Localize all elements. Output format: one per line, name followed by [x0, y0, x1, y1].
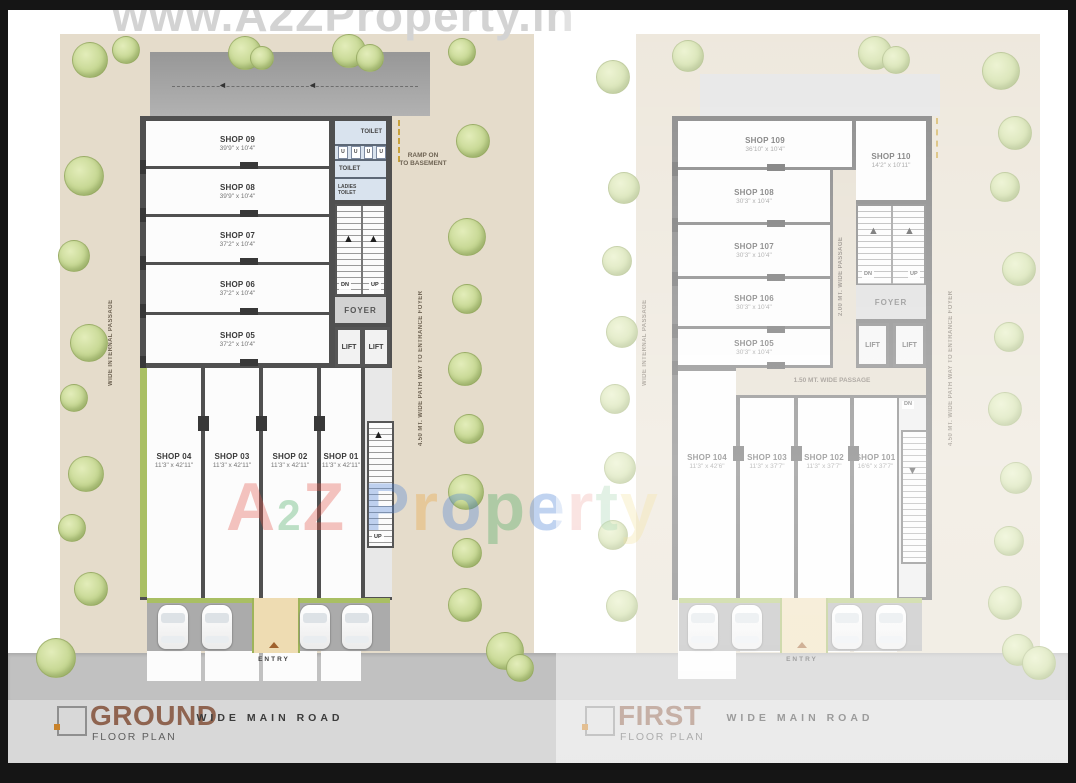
ramp-note-line2: TO BASEMENT [399, 160, 446, 167]
tree-icon [982, 52, 1020, 90]
passage-horizontal-label: 1.50 MT. WIDE PASSAGE [762, 377, 902, 385]
wall-column [848, 446, 859, 461]
wall-column [672, 324, 678, 338]
shop-room: SHOP 110 14'2" x 10'11" [856, 121, 926, 200]
tree-icon [448, 38, 476, 66]
wall-column [140, 304, 146, 318]
tree-icon [602, 246, 632, 276]
tree-icon [58, 240, 90, 272]
shop-dim: 37'2" x 10'4" [220, 290, 256, 297]
tree-icon [994, 322, 1024, 352]
tree-icon [70, 324, 108, 362]
shop-room: SHOP 105 30'3" x 10'4" [678, 329, 830, 365]
first-top-band [700, 74, 940, 116]
shop-name: SHOP 106 [734, 294, 774, 303]
wall-column [314, 416, 325, 431]
shop-room: SHOP 109 36'10" x 10'4" [678, 121, 852, 167]
stair-dn-label: DN [339, 282, 351, 290]
stair-dn-label: DN [902, 401, 914, 409]
frame-top [0, 0, 1076, 10]
pathway-label: 4.50 MT. WIDE PATH WAY TO ENTRANCE FOYER [948, 312, 954, 446]
pathway-label: 4.50 MT. WIDE PATH WAY TO ENTRANCE FOYER [418, 312, 424, 446]
shop-room: SHOP 107 30'3" x 10'4" [678, 225, 830, 276]
hedge-strip [140, 368, 147, 597]
tree-icon [606, 590, 638, 622]
tree-icon [448, 588, 482, 622]
lift: LIFT [362, 327, 390, 367]
stair-dn-label: DN [862, 271, 874, 279]
tree-icon [452, 284, 482, 314]
wall-column [140, 160, 146, 174]
shop-dim: 11'3" x 37'7" [806, 463, 841, 470]
foyer: FOYER [856, 285, 926, 319]
tree-icon [608, 172, 640, 204]
shop-name: SHOP 04 [156, 452, 191, 461]
frame-right [1068, 0, 1076, 783]
ramp-note-line1: RAMP ON [408, 152, 439, 159]
wall-column [240, 308, 258, 315]
tree-icon [998, 116, 1032, 150]
stair-up-label: UP [369, 282, 381, 290]
wall-column [256, 416, 267, 431]
tree-icon [600, 384, 630, 414]
tree-icon [36, 638, 76, 678]
frame-bottom [0, 763, 1076, 783]
drive-direction-icon: ◄ [218, 81, 227, 90]
parked-car-icon [300, 605, 330, 649]
shop-name: SHOP 08 [220, 183, 255, 192]
shop-name: SHOP 107 [734, 242, 774, 251]
legend-dot-icon [54, 724, 60, 730]
shop-room: SHOP 08 39'9" x 10'4" [146, 169, 329, 214]
wall-column [240, 258, 258, 265]
floor-plan-sheet: www.A2ZProperty.in ◄ ◄ RAMP ON TO BASEME… [0, 0, 1076, 783]
entry-marker-icon [269, 642, 279, 648]
tree-icon [988, 586, 1022, 620]
passage-vertical-label: 2.00 MT. WIDE PASSAGE [838, 206, 844, 346]
tree-icon [1002, 252, 1036, 286]
shop-name: SHOP 01 [323, 452, 358, 461]
shop-dim: 14'2" x 10'11" [872, 162, 911, 169]
shop-name: SHOP 06 [220, 280, 255, 289]
tree-icon [68, 456, 104, 492]
wall-column [140, 256, 146, 270]
internal-passage-label: WIDE INTERNAL PASSAGE [642, 295, 648, 391]
entry-label: ENTRY [252, 656, 296, 663]
stair-up-icon: ▲ [368, 234, 379, 245]
road-label: WIDE MAIN ROAD [160, 712, 380, 724]
tree-icon [506, 654, 534, 682]
first-plan-subtitle: FLOOR PLAN [620, 731, 705, 743]
tree-icon [74, 572, 108, 606]
tree-icon [990, 172, 1020, 202]
tree-icon [448, 218, 486, 256]
tree-icon [64, 156, 104, 196]
legend-square-icon [57, 706, 87, 736]
wall-column [240, 162, 258, 169]
stair-down-icon: ▼ [907, 466, 918, 477]
shop-dim: 39'9" x 10'4" [220, 145, 256, 152]
wall-column [672, 162, 678, 176]
urinal-icon: U [351, 146, 361, 159]
shop-name: SHOP 07 [220, 231, 255, 240]
first-building: SHOP 109 36'10" x 10'4" SHOP 108 30'3" x… [672, 116, 932, 600]
ladies-toilet-label: LADIES TOILET [338, 184, 356, 196]
legend-square-icon [585, 706, 615, 736]
brand-word-property: Property [364, 469, 660, 545]
shop-name: SHOP 110 [871, 152, 910, 161]
lift: LIFT [856, 323, 889, 367]
entry-marker-icon [797, 642, 807, 648]
wall-column [791, 446, 802, 461]
parked-car-icon [832, 605, 862, 649]
shop-dim: 30'3" x 10'4" [736, 252, 772, 259]
shop-dim: 11'3" x 42'6" [689, 463, 724, 470]
parked-car-icon [876, 605, 906, 649]
wall-column [767, 164, 785, 171]
urinal-icon: U [376, 146, 386, 159]
tree-icon [456, 124, 490, 158]
ladies-line2: TOILET [338, 190, 356, 196]
tree-icon [882, 46, 910, 74]
entry-label: ENTRY [780, 656, 824, 663]
wall-column [198, 416, 209, 431]
ground-driveway [150, 52, 430, 116]
urinal-icon: U [338, 146, 348, 159]
toilet-block: TOILET U U U U TOILET LADIES TOILET [335, 121, 386, 200]
lift: LIFT [335, 327, 363, 367]
shop-dim: 11'3" x 42'11" [155, 462, 193, 469]
stair-up-label: UP [908, 271, 920, 279]
ramp-barrier-line [936, 118, 938, 158]
wall-column [767, 326, 785, 333]
wall-column [672, 218, 678, 232]
wide-passage-vertical [833, 170, 856, 392]
brand-word-a2z: A2Z [226, 469, 346, 545]
shop-room: SHOP 06 37'2" x 10'4" [146, 265, 329, 312]
shop-name: SHOP 108 [734, 188, 774, 197]
parked-car-icon [202, 605, 232, 649]
shop-dim: 30'3" x 10'4" [736, 304, 772, 311]
wall-column [733, 446, 744, 461]
legend-dot-icon [582, 724, 588, 730]
toilet-label: TOILET [361, 129, 382, 135]
parked-car-icon [342, 605, 372, 649]
wall-column [672, 272, 678, 286]
road-label: WIDE MAIN ROAD [690, 712, 910, 724]
urinal-icon: U [364, 146, 374, 159]
shop-room: SHOP 108 30'3" x 10'4" [678, 170, 830, 222]
tree-icon [112, 36, 140, 64]
shop-name: SHOP 103 [747, 453, 787, 462]
shop-name: SHOP 03 [214, 452, 249, 461]
shop-name: SHOP 09 [220, 135, 255, 144]
tree-icon [606, 316, 638, 348]
stair-up-icon: ▲ [373, 430, 384, 441]
shop-name: SHOP 105 [734, 339, 774, 348]
wall-column [767, 274, 785, 281]
shop-dim: 36'10" x 10'4" [745, 146, 784, 153]
shop-room: SHOP 05 37'2" x 10'4" [146, 315, 329, 363]
shop-dim: 30'3" x 10'4" [736, 198, 772, 205]
stair-up-icon: ▲ [343, 234, 354, 245]
ramp-note: RAMP ON TO BASEMENT [392, 152, 454, 169]
shop-room: SHOP 09 39'9" x 10'4" [146, 121, 329, 166]
tree-icon [1022, 646, 1056, 680]
tree-icon [994, 526, 1024, 556]
shop-name: SHOP 05 [220, 331, 255, 340]
tree-icon [250, 46, 274, 70]
shop-name: SHOP 109 [745, 136, 785, 145]
tree-icon [60, 384, 88, 412]
first-plan-title: FIRST [618, 702, 701, 730]
tree-icon [596, 60, 630, 94]
shop-dim: 39'9" x 10'4" [220, 193, 256, 200]
drive-direction-icon: ◄ [308, 81, 317, 90]
brand-watermark: A2ZProperty [226, 468, 660, 546]
tree-icon [356, 44, 384, 72]
parked-car-icon [732, 605, 762, 649]
tree-icon [58, 514, 86, 542]
wall-column [767, 362, 785, 369]
tree-icon [1000, 462, 1032, 494]
tree-icon [72, 42, 108, 78]
shop-dim: 37'2" x 10'4" [220, 341, 256, 348]
shop-dim: 16'6" x 37'7" [858, 463, 894, 470]
wall-column [240, 359, 258, 366]
foyer: FOYER [335, 297, 386, 323]
shop-name: SHOP 101 [856, 453, 896, 462]
lift: LIFT [893, 323, 926, 367]
parked-car-icon [688, 605, 718, 649]
tree-icon [988, 392, 1022, 426]
stair-up-icon: ▲ [904, 226, 915, 237]
side-staircase [901, 430, 928, 564]
ground-plan-subtitle: FLOOR PLAN [92, 731, 177, 743]
wall-column [240, 210, 258, 217]
tree-icon [448, 352, 482, 386]
toilet-label: TOILET [339, 166, 360, 172]
stair-up-icon: ▲ [868, 226, 879, 237]
shop-room: SHOP 07 37'2" x 10'4" [146, 217, 329, 262]
shop-name: SHOP 104 [687, 453, 727, 462]
shop-room: SHOP 106 30'3" x 10'4" [678, 279, 830, 326]
tree-icon [672, 40, 704, 72]
parked-car-icon [158, 605, 188, 649]
wall-column [672, 361, 678, 375]
shop-name: SHOP 102 [804, 453, 844, 462]
tree-icon [454, 414, 484, 444]
driveway-guide-line [172, 86, 418, 87]
shop-dim: 30'3" x 10'4" [736, 349, 772, 356]
shop-dim: 11'3" x 37'7" [749, 463, 784, 470]
internal-passage-label: WIDE INTERNAL PASSAGE [108, 295, 114, 391]
wall-column [767, 220, 785, 227]
shop-dim: 37'2" x 10'4" [220, 241, 256, 248]
wall-column [140, 208, 146, 222]
shop-name: SHOP 02 [272, 452, 307, 461]
frame-left [0, 0, 8, 783]
